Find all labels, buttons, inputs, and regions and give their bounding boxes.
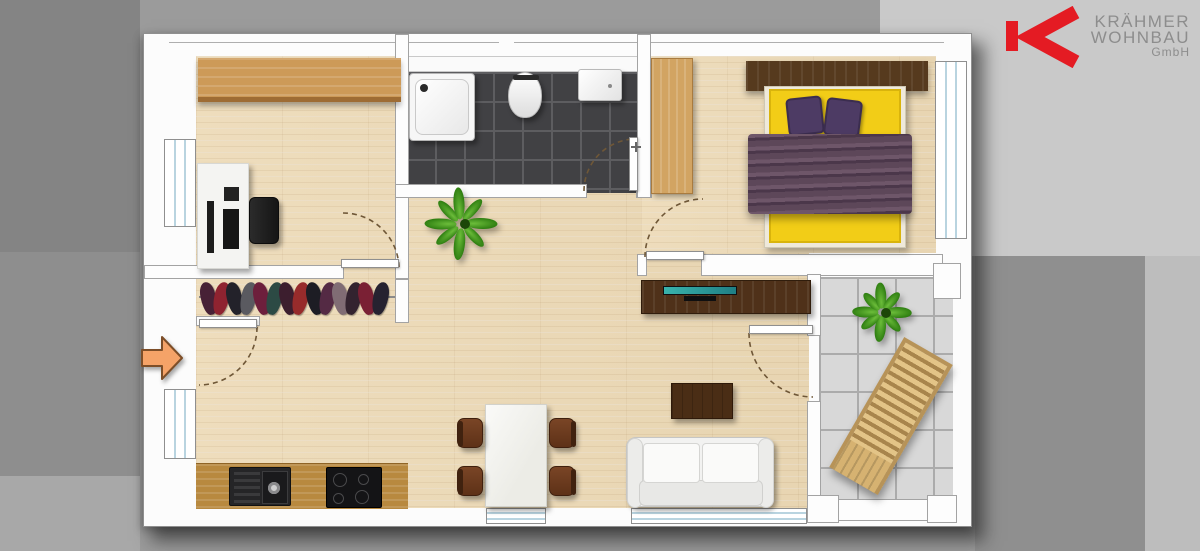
balcony-post-bottom-left bbox=[807, 495, 839, 523]
burner bbox=[358, 474, 369, 485]
dining-chair bbox=[549, 418, 575, 448]
office-door-leaf bbox=[341, 259, 399, 268]
scene: KRÄHMER WOHNBAU GmbH bbox=[0, 0, 1200, 551]
tv bbox=[663, 286, 737, 295]
keyboard bbox=[223, 209, 239, 249]
monitor bbox=[207, 201, 214, 253]
bathroom-sink bbox=[578, 69, 622, 101]
chair-backrest bbox=[458, 469, 463, 495]
wall-coat-niche-right bbox=[395, 279, 409, 323]
balcony-post-bottom-right bbox=[927, 495, 957, 523]
dining-window-bottom bbox=[486, 508, 546, 524]
logo-text: KRÄHMER WOHNBAU GmbH bbox=[1091, 14, 1190, 59]
burner bbox=[355, 490, 369, 504]
burner bbox=[333, 473, 347, 487]
chair-backrest bbox=[458, 421, 463, 447]
blanket bbox=[748, 134, 912, 214]
living-room-window-left bbox=[164, 389, 196, 459]
entrance-door-leaf bbox=[199, 319, 257, 328]
handle-bar bbox=[635, 142, 637, 152]
dining-chair bbox=[457, 466, 483, 496]
sofa-backrest bbox=[639, 480, 763, 506]
kitchen-sink-unit bbox=[229, 467, 291, 506]
tv-soundbar bbox=[684, 296, 716, 301]
wall-outline bbox=[514, 42, 944, 43]
office-cabinet bbox=[198, 58, 401, 102]
living-window-bottom bbox=[631, 508, 807, 524]
logo-line-2: WOHNBAU bbox=[1091, 30, 1190, 46]
bg-patch-top-left bbox=[0, 0, 140, 252]
dining-table bbox=[485, 404, 547, 507]
toilet bbox=[508, 72, 542, 118]
plant-center bbox=[460, 219, 470, 229]
sofa-cushion bbox=[643, 443, 700, 483]
sofa-cushion bbox=[702, 443, 759, 483]
pillow bbox=[785, 95, 825, 137]
wall-outline bbox=[169, 42, 499, 43]
balcony-door-leaf bbox=[749, 325, 813, 334]
entrance-arrow bbox=[140, 329, 184, 387]
bedroom-window bbox=[935, 61, 967, 239]
sink-drainboard bbox=[234, 472, 260, 503]
cooktop bbox=[326, 467, 382, 508]
balcony-plant bbox=[860, 287, 908, 335]
office-window bbox=[164, 139, 196, 227]
wall-bath-bedroom bbox=[637, 34, 651, 198]
toilet-seat-bar bbox=[513, 75, 539, 80]
coat-item bbox=[369, 281, 391, 316]
pillow bbox=[823, 97, 863, 139]
dining-chair bbox=[457, 418, 483, 448]
company-logo: KRÄHMER WOHNBAU GmbH bbox=[998, 4, 1194, 68]
sink-drain-dot bbox=[608, 84, 612, 88]
chair-backrest bbox=[571, 421, 576, 447]
bathroom-door-handle bbox=[631, 142, 641, 152]
chair-backrest bbox=[571, 469, 576, 495]
coffee-table bbox=[671, 383, 733, 419]
bedroom-door-leaf bbox=[646, 251, 704, 260]
houseplant bbox=[434, 196, 492, 248]
logo-k-mark-icon bbox=[998, 6, 1090, 68]
burner bbox=[333, 493, 344, 504]
wardrobe bbox=[651, 58, 693, 194]
faucet-knob bbox=[268, 482, 280, 494]
office-chair bbox=[249, 197, 279, 244]
coat-rack bbox=[199, 280, 395, 318]
dining-chair bbox=[549, 466, 575, 496]
bg-patch-left-bottom bbox=[0, 476, 140, 551]
shower-drain bbox=[420, 84, 428, 92]
sofa bbox=[626, 437, 774, 507]
shower-tray bbox=[409, 73, 475, 141]
bg-patch-right-edge bbox=[1145, 256, 1200, 551]
logo-line-3: GmbH bbox=[1091, 46, 1190, 59]
bg-patch-left-mid bbox=[0, 252, 140, 476]
floor-plan bbox=[143, 33, 972, 527]
balcony-post-top-right bbox=[933, 263, 961, 299]
bg-patch-right-mid bbox=[975, 256, 1145, 551]
wall-bedroom-bottom bbox=[701, 254, 943, 276]
desk-accessory bbox=[224, 187, 239, 201]
